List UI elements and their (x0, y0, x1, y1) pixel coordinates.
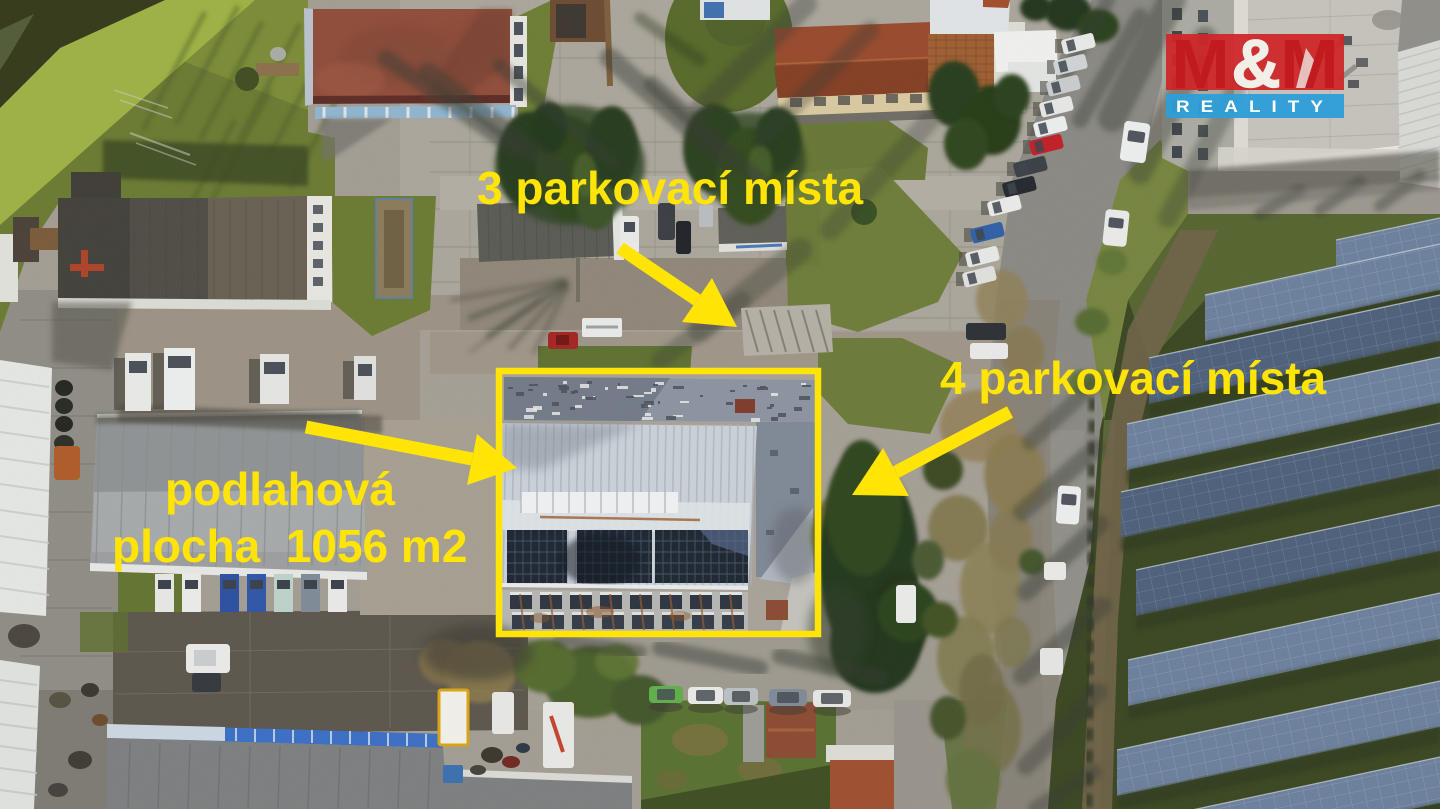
svg-text:3 parkovací místa: 3 parkovací místa (477, 162, 864, 214)
svg-text:&: & (1231, 26, 1280, 102)
svg-text:plocha 1056 m2: plocha 1056 m2 (112, 520, 467, 572)
svg-text:podlahová: podlahová (165, 463, 395, 515)
svg-text:REALITY: REALITY (1176, 97, 1334, 116)
svg-text:4 parkovací místa: 4 parkovací místa (940, 352, 1327, 404)
